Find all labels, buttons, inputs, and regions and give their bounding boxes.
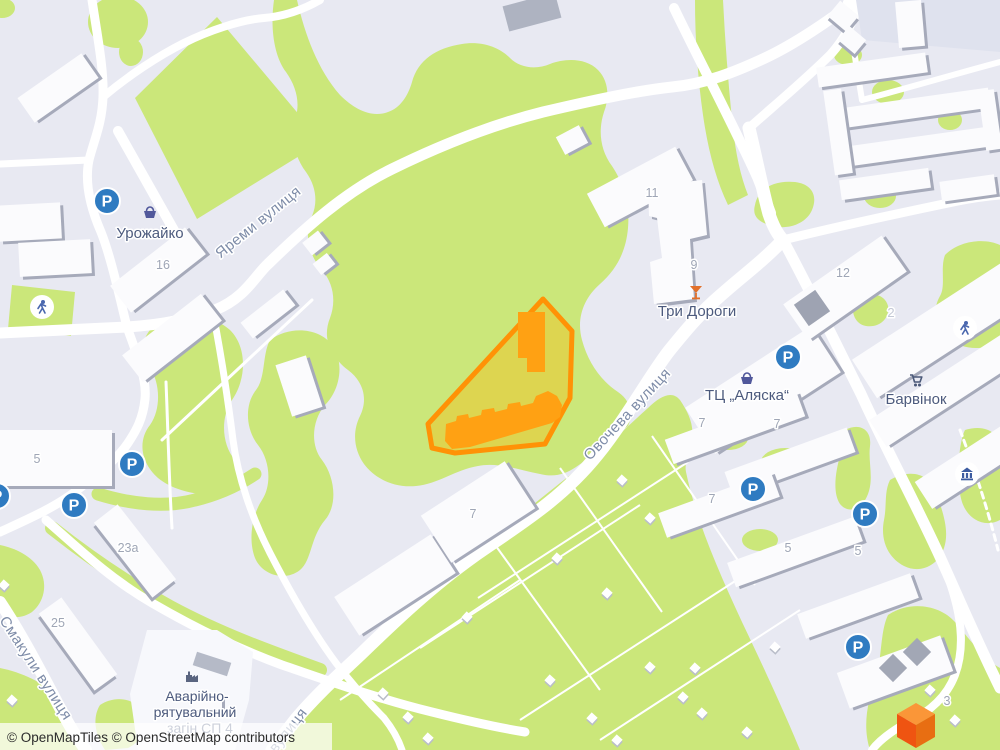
parking-icon[interactable]: P <box>740 476 766 502</box>
place-label-urozhaiko[interactable]: Урожайко <box>116 225 183 242</box>
house-number: 5 <box>34 452 41 466</box>
playground-icon[interactable] <box>953 316 977 340</box>
place-label-try-dorohy[interactable]: Три Дороги <box>658 303 736 320</box>
svg-text:P: P <box>783 350 794 367</box>
parking-icon[interactable]: P <box>775 344 801 370</box>
parking-icon[interactable]: P <box>119 451 145 477</box>
map-viewport[interactable]: P P P P P P P P P <box>0 0 1000 750</box>
svg-text:P: P <box>127 457 138 474</box>
house-number: 7 <box>699 416 706 430</box>
svg-text:P: P <box>860 507 871 524</box>
house-number: 7 <box>774 417 781 431</box>
house-number: 3 <box>944 694 951 708</box>
parking-icon[interactable]: P <box>845 634 871 660</box>
house-number: 5 <box>855 544 862 558</box>
house-number: 2 <box>887 305 894 320</box>
place-label-rescue-2[interactable]: рятувальний <box>154 704 237 720</box>
parking-icon[interactable]: P <box>852 501 878 527</box>
house-number: 5 <box>785 541 792 555</box>
house-number: 23а <box>118 541 139 555</box>
house-number: 11 <box>646 186 659 200</box>
house-number: 25 <box>51 616 65 630</box>
svg-text:P: P <box>853 640 864 657</box>
place-label-alaska[interactable]: ТЦ „Аляска“ <box>705 387 789 404</box>
house-number: 16 <box>156 258 170 272</box>
museum-icon[interactable] <box>955 462 979 486</box>
svg-text:P: P <box>69 498 80 515</box>
svg-text:P: P <box>0 489 3 506</box>
parking-icon[interactable]: P <box>94 188 120 214</box>
parking-icon[interactable]: P <box>61 492 87 518</box>
attribution: © OpenMapTiles © OpenStreetMap contribut… <box>0 723 332 750</box>
svg-text:P: P <box>748 482 759 499</box>
house-number: 7 <box>470 507 477 521</box>
house-number: 9 <box>691 258 698 272</box>
house-number: 12 <box>836 266 850 280</box>
attribution-text[interactable]: © OpenMapTiles © OpenStreetMap contribut… <box>7 730 295 745</box>
house-number: 7 <box>709 492 716 506</box>
playground-icon[interactable] <box>30 295 54 319</box>
svg-text:P: P <box>102 194 113 211</box>
map-canvas[interactable]: P P P P P P P P P <box>0 0 1000 750</box>
place-label-barvinok[interactable]: Барвінок <box>885 391 946 408</box>
place-label-rescue-1[interactable]: Аварійно- <box>165 688 229 704</box>
